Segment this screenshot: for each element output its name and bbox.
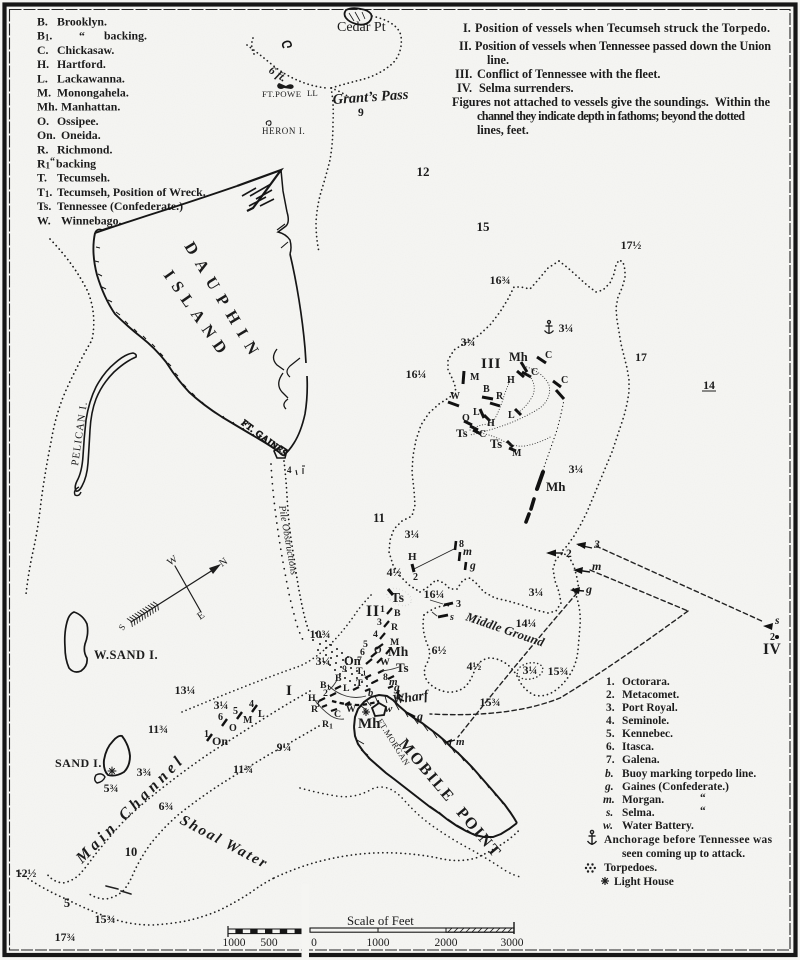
svg-text:13¼: 13¼ — [175, 683, 196, 697]
svg-text:Galena.: Galena. — [622, 754, 660, 766]
svg-text:b.: b. — [605, 768, 614, 780]
svg-text:w.: w. — [603, 820, 613, 832]
svg-text:Ossipee.: Ossipee. — [57, 114, 99, 128]
svg-text:Position of vessels when Tecum: Position of vessels when Tecumseh struck… — [475, 21, 770, 35]
svg-text:Anchorage before Tennessee was: Anchorage before Tennessee was — [604, 834, 773, 846]
svg-text:3¼: 3¼ — [569, 462, 584, 476]
svg-text:L: L — [343, 683, 350, 694]
svg-text:On: On — [212, 734, 228, 748]
svg-text:3¼: 3¼ — [559, 321, 574, 335]
svg-text:10: 10 — [125, 845, 138, 859]
svg-text:L: L — [473, 407, 480, 418]
svg-text:3¾: 3¾ — [137, 765, 152, 779]
svg-text:O.: O. — [37, 114, 49, 128]
svg-text:B: B — [394, 608, 401, 619]
svg-text:Torpedoes.: Torpedoes. — [604, 862, 657, 874]
svg-text:2: 2 — [413, 572, 418, 583]
svg-text:R1: R1 — [322, 719, 333, 731]
svg-text:Conflict of Tennessee with the: Conflict of Tennessee with the fleet. — [477, 67, 660, 81]
svg-text:C: C — [545, 350, 552, 361]
svg-text:H: H — [507, 375, 515, 386]
svg-text:9: 9 — [358, 107, 364, 119]
svg-text:O: O — [229, 723, 237, 734]
svg-text:“: “ — [700, 805, 706, 817]
svg-text:H: H — [487, 418, 495, 429]
svg-text:2: 2 — [323, 688, 328, 699]
svg-text:16¼: 16¼ — [406, 367, 427, 381]
svg-text:Lackawanna.: Lackawanna. — [57, 71, 125, 85]
svg-text:1: 1 — [380, 604, 385, 615]
svg-text:Ts: Ts — [391, 590, 404, 605]
svg-text:O: O — [462, 413, 470, 424]
svg-text:5: 5 — [64, 896, 70, 910]
svg-text:Kennebec.: Kennebec. — [622, 728, 673, 740]
svg-text:B.: B. — [37, 15, 48, 29]
svg-text:C: C — [561, 375, 568, 386]
svg-text:m: m — [592, 559, 601, 573]
svg-text:3¼: 3¼ — [461, 335, 476, 349]
svg-text:B1.: B1. — [37, 29, 52, 43]
svg-text:17¾: 17¾ — [55, 930, 76, 944]
svg-text:L: L — [508, 410, 515, 421]
svg-text:Mh: Mh — [509, 350, 528, 364]
svg-text:Buoy marking torpedo line.: Buoy marking torpedo line. — [622, 768, 756, 780]
svg-text:w: w — [385, 703, 393, 715]
svg-text:Cedar Pt: Cedar Pt — [337, 20, 386, 35]
svg-text:Ts: Ts — [396, 660, 409, 675]
svg-text:W: W — [450, 391, 460, 402]
svg-text:SAND I.: SAND I. — [55, 756, 102, 770]
svg-text:3: 3 — [456, 599, 461, 610]
svg-text:m: m — [456, 736, 465, 748]
svg-text:Brooklyn.: Brooklyn. — [57, 15, 107, 29]
svg-text:B: B — [483, 384, 490, 395]
svg-text:4½: 4½ — [387, 565, 402, 579]
svg-text:Richmond.: Richmond. — [57, 142, 112, 156]
svg-text:Position of vessels when Tenne: Position of vessels when Tennessee passe… — [475, 39, 771, 53]
svg-text:9: 9 — [342, 664, 347, 674]
svg-text:III: III — [481, 356, 502, 372]
svg-text:3: 3 — [377, 617, 382, 628]
svg-text:L.: L. — [37, 71, 48, 85]
svg-text:IV: IV — [763, 641, 782, 658]
svg-text:6¾: 6¾ — [159, 799, 174, 813]
svg-text:6½: 6½ — [432, 643, 447, 657]
svg-text:seen coming up to attack.: seen coming up to attack. — [622, 848, 745, 860]
svg-text:C: C — [531, 367, 538, 378]
svg-text:9¼: 9¼ — [277, 740, 292, 754]
svg-text:Tecumseh.: Tecumseh. — [57, 171, 110, 185]
svg-text:Mh: Mh — [388, 644, 409, 659]
svg-text:16¾: 16¾ — [490, 273, 511, 287]
svg-text:2: 2 — [566, 548, 572, 560]
svg-text:M.: M. — [37, 86, 51, 100]
svg-text:7.: 7. — [606, 754, 615, 766]
svg-text:10¾: 10¾ — [310, 627, 331, 641]
svg-text:M: M — [470, 372, 480, 383]
svg-text:On.: On. — [37, 128, 56, 142]
svg-text:500: 500 — [260, 937, 278, 949]
svg-text:lines, feet.: lines, feet. — [477, 123, 529, 137]
svg-text:M: M — [243, 715, 253, 726]
svg-text:H: H — [408, 551, 417, 563]
svg-text:channel they indicate depth in: channel they indicate depth in fathoms; … — [477, 109, 745, 123]
svg-text:HERON I.: HERON I. — [262, 126, 305, 136]
svg-text:“: “ — [700, 792, 706, 804]
svg-text:C.: C. — [37, 43, 49, 57]
svg-text:4: 4 — [287, 465, 292, 475]
svg-text:Figures not attached to vessel: Figures not attached to vessels give the… — [452, 95, 771, 109]
svg-text:5¾: 5¾ — [104, 781, 119, 795]
svg-text:3¼: 3¼ — [523, 663, 538, 677]
svg-text:T1.: T1. — [37, 185, 52, 199]
svg-text:m.: m. — [603, 794, 615, 806]
svg-text:g: g — [585, 582, 592, 596]
svg-text:4: 4 — [373, 629, 378, 640]
svg-text:M: M — [512, 448, 522, 459]
svg-text:R: R — [311, 704, 319, 715]
svg-text:H.: H. — [37, 57, 49, 71]
svg-text:15: 15 — [477, 219, 491, 234]
svg-text:line.: line. — [487, 53, 509, 67]
svg-text:12½: 12½ — [16, 866, 37, 880]
svg-text:R: R — [391, 622, 399, 633]
svg-text:Winnebago.: Winnebago. — [61, 213, 121, 227]
svg-text:3000: 3000 — [501, 937, 524, 949]
svg-text:5.: 5. — [606, 728, 615, 740]
svg-text:3¼: 3¼ — [405, 527, 420, 541]
svg-text:5: 5 — [233, 706, 238, 717]
svg-text:3¼: 3¼ — [214, 698, 229, 712]
svg-text:14: 14 — [703, 378, 715, 392]
svg-text:T1: T1 — [356, 666, 367, 678]
svg-text:II.: II. — [459, 39, 472, 53]
svg-text:R.: R. — [37, 142, 49, 156]
svg-text:g.: g. — [604, 781, 614, 793]
svg-text:2.: 2. — [606, 689, 615, 701]
svg-text:s: s — [449, 612, 454, 623]
svg-text:backing.: backing. — [104, 29, 147, 43]
svg-text:Seminole.: Seminole. — [622, 715, 669, 727]
svg-text:FT.POWE: FT.POWE — [262, 89, 302, 99]
svg-text:C: C — [334, 709, 341, 720]
svg-text:16¼: 16¼ — [424, 587, 445, 601]
svg-text:11¾: 11¾ — [233, 762, 253, 776]
svg-text:3.: 3. — [606, 702, 615, 714]
svg-text:Monongahela.: Monongahela. — [57, 86, 129, 100]
svg-text:17: 17 — [635, 350, 647, 364]
svg-text:Port Royal.: Port Royal. — [622, 702, 678, 714]
svg-text:g: g — [469, 560, 476, 572]
svg-text:1000: 1000 — [223, 937, 246, 949]
svg-text:I.: I. — [463, 21, 471, 35]
svg-text:12: 12 — [417, 164, 430, 179]
svg-text:Itasca.: Itasca. — [622, 741, 654, 753]
svg-text:W.SAND I.: W.SAND I. — [94, 648, 158, 662]
svg-text:T.: T. — [37, 171, 47, 185]
svg-text:s: s — [774, 615, 780, 627]
svg-text:Selma.: Selma. — [622, 807, 655, 819]
svg-text:4½: 4½ — [467, 659, 482, 673]
svg-text:15¾: 15¾ — [548, 664, 569, 678]
svg-text:8: 8 — [383, 672, 388, 683]
svg-text:O: O — [374, 645, 382, 656]
svg-text:15¾: 15¾ — [95, 912, 116, 926]
svg-text:Manhattan.: Manhattan. — [61, 100, 120, 114]
svg-text:6.: 6. — [606, 741, 615, 753]
svg-text:Ts.: Ts. — [37, 199, 51, 213]
svg-text:14¼: 14¼ — [516, 616, 537, 630]
svg-text:B: B — [335, 673, 342, 684]
svg-text:L: L — [258, 709, 265, 720]
svg-text:Tecumseh, Position of Wreck.: Tecumseh, Position of Wreck. — [57, 185, 206, 199]
svg-text:Oneida.: Oneida. — [61, 128, 101, 142]
svg-text:Mh: Mh — [358, 716, 381, 732]
svg-text:W: W — [346, 704, 356, 715]
svg-text:Ts: Ts — [456, 426, 468, 440]
svg-text:1000: 1000 — [367, 937, 390, 949]
svg-text:3: 3 — [593, 539, 600, 551]
svg-text:Gaines (Confederate.): Gaines (Confederate.) — [622, 781, 729, 793]
svg-text:“: “ — [79, 29, 85, 43]
svg-text:4.: 4. — [606, 715, 615, 727]
svg-text:Scale of Feet: Scale of Feet — [347, 914, 414, 928]
svg-text:LL: LL — [307, 88, 318, 98]
svg-text:6: 6 — [218, 712, 223, 723]
svg-text:11: 11 — [373, 511, 385, 525]
svg-text:1.: 1. — [606, 676, 615, 688]
svg-text:I: I — [286, 683, 292, 699]
svg-text:Water Battery.: Water Battery. — [622, 820, 694, 832]
svg-text:2000: 2000 — [435, 937, 458, 949]
svg-text:Morgan.: Morgan. — [622, 794, 664, 806]
svg-text:17½: 17½ — [621, 238, 642, 252]
svg-text:W: W — [380, 657, 390, 668]
svg-text:g: g — [416, 709, 423, 723]
svg-text:Octorara.: Octorara. — [622, 676, 670, 688]
svg-text:Chickasaw.: Chickasaw. — [57, 43, 114, 57]
svg-text:15¾: 15¾ — [480, 695, 501, 709]
svg-text:R: R — [496, 391, 504, 402]
svg-text:0: 0 — [311, 937, 317, 949]
svg-text:III.: III. — [455, 67, 472, 81]
svg-text:Ts: Ts — [490, 437, 502, 451]
svg-text:Mh: Mh — [546, 479, 566, 494]
svg-text:Light House: Light House — [614, 876, 674, 888]
svg-text:W.: W. — [37, 213, 51, 227]
svg-text:m: m — [463, 546, 472, 558]
svg-text:s.: s. — [605, 807, 613, 819]
svg-text:C: C — [479, 429, 486, 440]
svg-text:Metacomet.: Metacomet. — [622, 689, 679, 701]
svg-text:11¾: 11¾ — [148, 722, 168, 736]
svg-text:T: T — [356, 678, 363, 689]
svg-text:Selma surrenders.: Selma surrenders. — [479, 81, 574, 95]
svg-text:Hartford.: Hartford. — [57, 57, 106, 71]
svg-text:Mh.: Mh. — [37, 100, 58, 114]
svg-text:3¼: 3¼ — [529, 585, 544, 599]
svg-text:IV.: IV. — [457, 81, 472, 95]
svg-text:3¼: 3¼ — [316, 654, 331, 668]
